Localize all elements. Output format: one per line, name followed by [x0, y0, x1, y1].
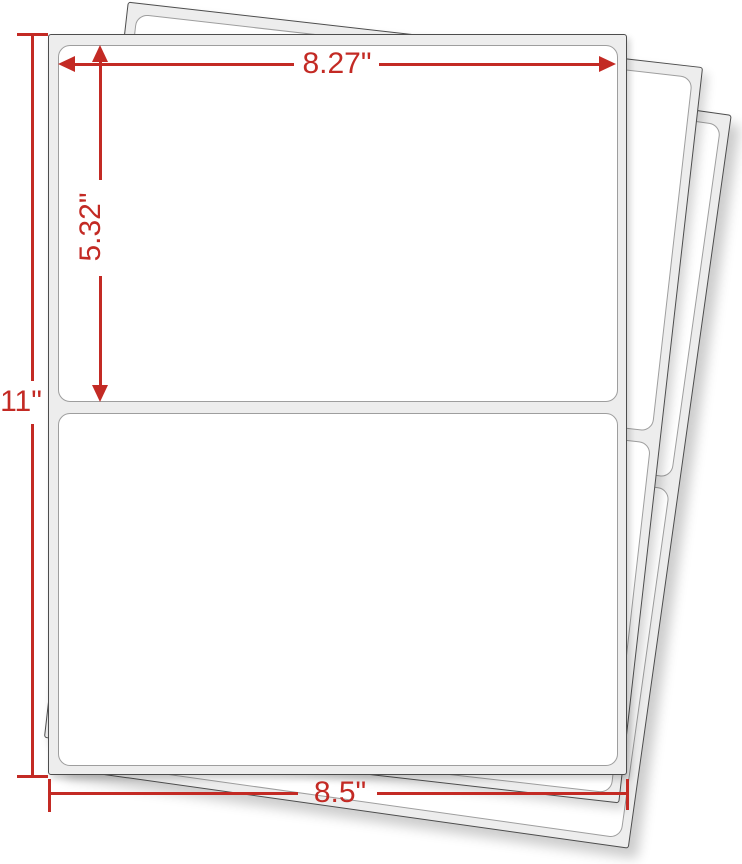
- arrowhead-up-icon: [92, 45, 108, 62]
- arrowhead-left-icon: [58, 56, 75, 72]
- dimension-end-tick: [626, 779, 629, 810]
- label-width-value: 8.27": [302, 49, 371, 79]
- dimension-end-tick: [48, 779, 51, 812]
- sheet-width-value: 8.5": [314, 778, 366, 808]
- label-sheets-illustration: 8.27" 5.32" 11" 8.5": [0, 0, 742, 864]
- dimension-line: [99, 276, 102, 386]
- label-height-value: 5.32": [76, 192, 106, 261]
- blank-label: [58, 413, 618, 766]
- dimension-line: [379, 63, 600, 66]
- blank-label: [58, 45, 618, 402]
- dimension-line: [74, 63, 294, 66]
- dimension-end-tick: [17, 775, 48, 778]
- arrowhead-right-icon: [599, 56, 616, 72]
- label-sheet-front: [48, 34, 627, 775]
- dimension-line: [31, 424, 34, 775]
- dimension-line: [377, 792, 626, 795]
- dimension-line: [99, 61, 102, 180]
- dimension-line: [51, 792, 298, 795]
- arrowhead-down-icon: [92, 385, 108, 402]
- dimension-line: [31, 36, 34, 381]
- sheet-height-value: 11": [0, 387, 42, 417]
